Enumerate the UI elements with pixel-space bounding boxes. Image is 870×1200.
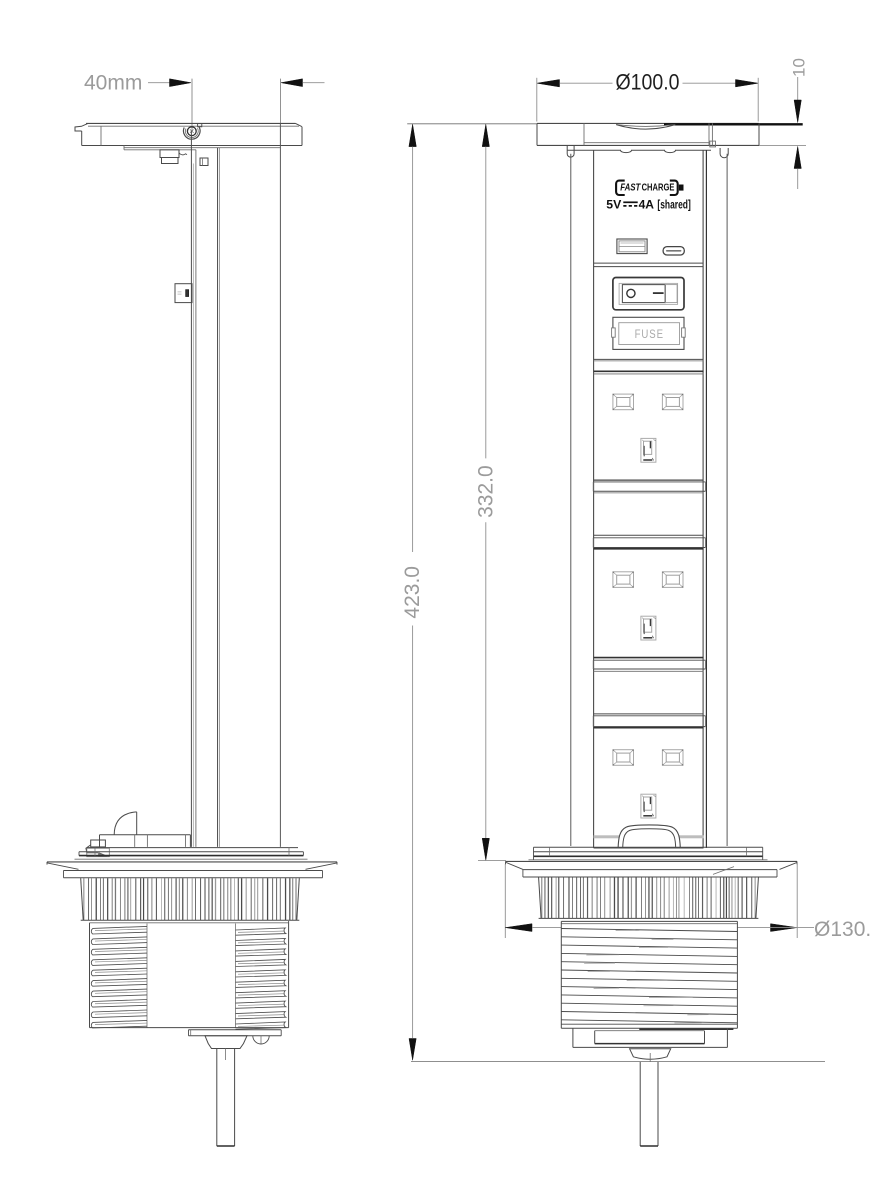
- svg-text:10: 10: [790, 58, 809, 77]
- svg-text:332.0: 332.0: [474, 465, 497, 518]
- svg-text:40mm: 40mm: [84, 72, 142, 95]
- svg-text:Ø130.: Ø130.: [814, 918, 870, 941]
- svg-text:CHARGE: CHARGE: [642, 182, 675, 193]
- svg-text:5V: 5V: [606, 199, 621, 212]
- svg-text:Ø100.0: Ø100.0: [616, 70, 680, 95]
- svg-text:[shared]: [shared]: [657, 199, 690, 212]
- svg-text:FUSE: FUSE: [635, 327, 664, 341]
- svg-text:4A: 4A: [639, 199, 655, 212]
- svg-text:FAST: FAST: [620, 182, 641, 193]
- svg-text:423.0: 423.0: [401, 566, 424, 619]
